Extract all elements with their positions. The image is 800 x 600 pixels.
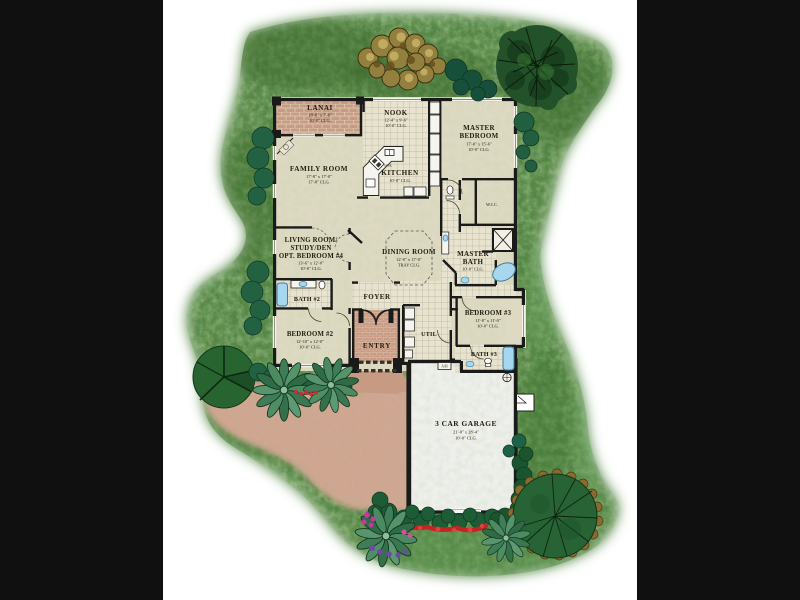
svg-text:11'-8" x 11'-0": 11'-8" x 11'-0" [475,318,501,323]
svg-text:17'-0" x 15'-6": 17'-0" x 15'-6" [466,142,492,147]
svg-text:10'-0" CLG.: 10'-0" CLG. [299,345,321,350]
svg-text:10'-0" CLG.: 10'-0" CLG. [455,436,477,441]
svg-text:MASTER: MASTER [457,250,489,258]
svg-text:OPT. BEDROOM #4: OPT. BEDROOM #4 [279,253,344,260]
svg-text:10'-0" CLG.: 10'-0" CLG. [300,266,322,271]
svg-text:13'-6" x 12'-0": 13'-6" x 12'-0" [298,261,324,266]
svg-text:3 CAR GARAGE: 3 CAR GARAGE [435,419,497,428]
svg-text:UTIL: UTIL [421,332,437,338]
svg-text:BEDROOM #2: BEDROOM #2 [287,331,334,338]
svg-text:BATH #3: BATH #3 [471,351,497,358]
svg-text:LIVING ROOM/: LIVING ROOM/ [285,237,338,244]
svg-text:NOOK: NOOK [384,109,407,117]
svg-text:BATH: BATH [463,258,484,266]
svg-text:12'-4" x 9'-6": 12'-4" x 9'-6" [384,118,408,123]
svg-text:10'-0" CLG.: 10'-0" CLG. [309,118,331,123]
svg-text:10'-0" CLG.: 10'-0" CLG. [468,147,490,152]
svg-text:10'-0" CLG.: 10'-0" CLG. [389,178,411,183]
svg-text:12'-10" x 12'-0": 12'-10" x 12'-0" [296,339,324,344]
svg-text:FOYER: FOYER [364,293,391,301]
svg-text:ENTRY: ENTRY [363,342,391,350]
svg-text:DINING ROOM: DINING ROOM [382,248,436,256]
svg-text:STUDY/DEN: STUDY/DEN [290,245,331,252]
svg-text:10'-0" CLG.: 10'-0" CLG. [462,267,484,272]
svg-text:BEDROOM: BEDROOM [459,132,498,140]
svg-text:W.I.C.: W.I.C. [486,202,498,207]
svg-text:SINK: SINK [384,164,392,168]
svg-text:MASTER: MASTER [463,124,495,132]
svg-text:12'-0" x 17'-0": 12'-0" x 17'-0" [396,257,422,262]
svg-text:LANAI: LANAI [307,104,333,112]
svg-text:17'-8" x 17'-0": 17'-8" x 17'-0" [306,174,332,179]
svg-text:18'-8" x 7'-6": 18'-8" x 7'-6" [308,113,332,118]
svg-text:KITCHEN: KITCHEN [381,169,419,177]
svg-text:21'-0" x 28'-4": 21'-0" x 28'-4" [453,430,479,435]
svg-text:10'-0" CLG.: 10'-0" CLG. [477,324,499,329]
svg-text:FAMILY ROOM: FAMILY ROOM [290,165,348,173]
svg-text:BEDROOM #3: BEDROOM #3 [465,310,512,317]
svg-text:17'-8" CLG.: 17'-8" CLG. [308,180,330,185]
svg-text:TRAY CLG.: TRAY CLG. [398,263,420,268]
svg-text:10'-0" CLG.: 10'-0" CLG. [385,123,407,128]
svg-text:BATH #2: BATH #2 [294,296,320,303]
svg-text:A/H: A/H [441,365,448,369]
